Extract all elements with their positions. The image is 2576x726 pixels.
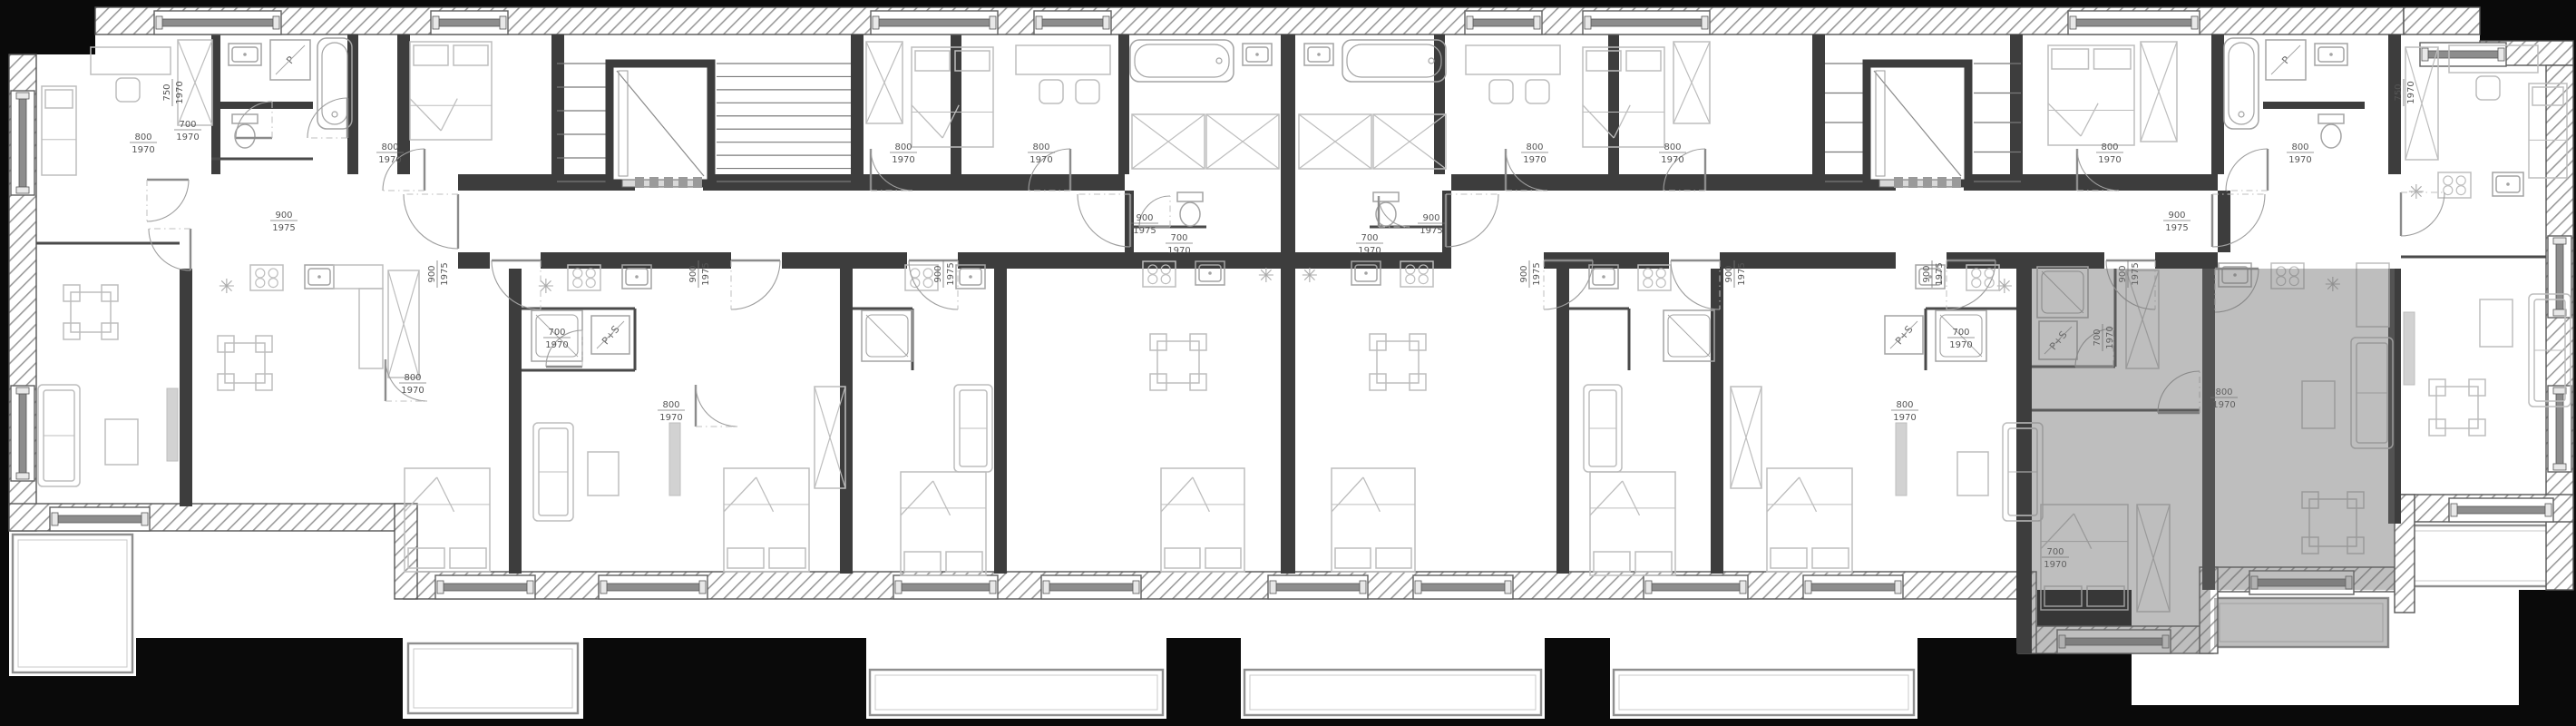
window-cap [156, 16, 162, 29]
dim-height: 1970 [2098, 155, 2121, 165]
dim-height: 1975 [440, 262, 450, 285]
dim-height: 1970 [1167, 246, 1190, 256]
wall [1812, 34, 1825, 174]
wall [2388, 34, 2401, 174]
building-slab [136, 531, 403, 638]
dim-width: 800 [404, 373, 421, 383]
dim-width: 800 [1664, 142, 1681, 152]
window-bar [19, 393, 26, 474]
fridge-symbol: ✳ [1258, 265, 1274, 288]
dim-width: 900 [1922, 265, 1932, 282]
window-bar [443, 584, 528, 591]
drain [243, 53, 247, 56]
wall [347, 34, 358, 174]
dim-width: 700 [1952, 328, 1969, 338]
window-cap [1895, 581, 1901, 594]
dim-height: 1970 [1893, 413, 1916, 423]
window-bar [57, 515, 142, 523]
window-cap [1036, 16, 1042, 29]
dim-width: 800 [2291, 142, 2308, 152]
window-cap [1270, 581, 1276, 594]
window-bar [161, 19, 274, 26]
window-cap [16, 93, 29, 99]
terrace [1614, 670, 1914, 715]
window-cap [141, 513, 148, 525]
window-cap [1043, 581, 1049, 594]
window-bar [1049, 584, 1134, 591]
window [1268, 575, 1368, 599]
wall [2211, 34, 2224, 174]
wall [180, 269, 192, 506]
window [50, 507, 150, 531]
window-cap [1415, 581, 1421, 594]
window-bar [1420, 584, 1506, 591]
wall [951, 34, 961, 174]
window-bar [2556, 243, 2563, 310]
dim-height: 1975 [272, 223, 295, 233]
dim-height: 1975 [1935, 262, 1945, 285]
drain [635, 275, 639, 279]
window-cap [1740, 581, 1746, 594]
terrace [870, 670, 1163, 715]
window [11, 386, 34, 481]
tv-bench [2404, 312, 2415, 385]
window-cap [1645, 581, 1652, 594]
dim-height: 1970 [545, 340, 568, 350]
window-cap [2553, 464, 2566, 470]
window-cap [1133, 581, 1139, 594]
window-cap [895, 581, 902, 594]
dim-width: 900 [2168, 211, 2185, 221]
dim-height: 1970 [1029, 155, 1052, 165]
exterior-wall [2404, 7, 2480, 34]
wall [458, 174, 551, 191]
wall [551, 34, 564, 174]
window-bar [19, 98, 26, 188]
terrace [2403, 525, 2568, 586]
dim-width: 700 [548, 328, 565, 338]
window [599, 575, 707, 599]
window-cap [699, 581, 706, 594]
window [1803, 575, 1903, 599]
wall [2016, 269, 2032, 653]
dim-height: 1975 [1133, 226, 1156, 236]
wall [2263, 102, 2365, 109]
window [2068, 11, 2200, 34]
window-cap [990, 581, 996, 594]
wall [958, 252, 1125, 269]
dim-width: 700 [179, 120, 196, 130]
wall [397, 34, 410, 174]
tv-bench [167, 388, 178, 461]
window-cap [1702, 16, 1708, 29]
dim-height: 1970 [892, 155, 914, 165]
window [2420, 43, 2506, 66]
fridge-icon: ✳ [1258, 265, 1274, 288]
terrace [1244, 670, 1541, 715]
dim-width: 800 [1896, 400, 1913, 410]
window-bar [2456, 506, 2546, 514]
dim-width: 900 [933, 265, 943, 282]
drain [1317, 53, 1321, 56]
window [154, 11, 281, 34]
dim-height: 1970 [2288, 155, 2311, 165]
window-cap [2451, 504, 2457, 516]
dim-width: 750 [162, 83, 172, 101]
fridge-symbol: ✳ [219, 276, 235, 299]
drain [1255, 53, 1259, 56]
window-bar [1590, 19, 1703, 26]
dim-height: 1975 [2165, 223, 2188, 233]
drain [2329, 53, 2333, 56]
tv-bench [669, 423, 680, 495]
window-cap [873, 16, 879, 29]
fridge-icon: ✳ [1302, 265, 1318, 288]
wall [840, 269, 853, 574]
exterior-wall [395, 504, 417, 599]
wall [703, 174, 864, 191]
dim-width: 900 [688, 265, 698, 282]
dim-height: 1970 [1949, 340, 1972, 350]
wall [1281, 269, 1295, 574]
dim-width: 800 [134, 132, 151, 142]
dim-width: 900 [427, 265, 437, 282]
window [2548, 386, 2571, 472]
window [893, 575, 998, 599]
terrace [408, 643, 578, 713]
wall [458, 252, 490, 269]
window [431, 11, 508, 34]
highlighted-balcony [2214, 598, 2388, 647]
window [871, 11, 998, 34]
drain [1364, 271, 1368, 275]
wall [994, 269, 1007, 574]
window [1413, 575, 1513, 599]
window-cap [2070, 16, 2076, 29]
tv-bench [669, 423, 680, 495]
window-cap [500, 16, 506, 29]
window-cap [16, 388, 29, 394]
window-cap [2191, 16, 2198, 29]
wall [1964, 174, 2023, 191]
window-bar [2556, 393, 2563, 465]
dim-width: 800 [1526, 142, 1543, 152]
dim-height: 1970 [1358, 246, 1381, 256]
dim-height: 1975 [1420, 226, 1442, 236]
dim-height: 1970 [401, 386, 424, 396]
tv-bench [167, 388, 178, 461]
dim-height: 1970 [1523, 155, 1546, 165]
dim-width: 900 [1724, 265, 1734, 282]
dim-width: 800 [381, 142, 398, 152]
window [1583, 11, 1710, 34]
window-cap [1103, 16, 1109, 29]
window-bar [1472, 19, 1535, 26]
drain [1602, 275, 1605, 279]
dim-width: 800 [662, 400, 679, 410]
dim-width: 900 [1422, 213, 1439, 223]
fridge-symbol: ✳ [1302, 265, 1318, 288]
window-cap [990, 16, 996, 29]
window-cap [16, 473, 29, 479]
terrace [13, 535, 132, 672]
window-cap [1585, 16, 1591, 29]
drain [1208, 271, 1212, 275]
window-cap [2553, 388, 2566, 394]
tv-bench [2404, 312, 2415, 385]
drain [317, 275, 321, 279]
dim-height: 1970 [176, 132, 199, 142]
window [1034, 11, 1111, 34]
dim-height: 1975 [1532, 262, 1542, 285]
floor-plan-stage: P✳✳P✳✳✳P+S✳P+SP+S✳9001975900197590019759… [0, 0, 2576, 726]
window-bar [901, 584, 990, 591]
window-cap [1360, 581, 1366, 594]
dim-height: 1975 [946, 262, 956, 285]
dim-width: 800 [1032, 142, 1049, 152]
window-cap [2498, 48, 2504, 61]
window-cap [16, 187, 29, 193]
tv-bench [1896, 423, 1907, 495]
window-bar [1041, 19, 1104, 26]
wall [1434, 34, 1445, 174]
wall [1556, 269, 1569, 574]
window [1465, 11, 1542, 34]
wall [782, 252, 907, 269]
wall [1281, 34, 1295, 269]
window-bar [878, 19, 990, 26]
window [2548, 236, 2571, 318]
window-bar [2075, 19, 2192, 26]
wall [2023, 174, 2218, 191]
wall [1118, 34, 1129, 174]
window-cap [2545, 504, 2552, 516]
wall [864, 174, 1125, 191]
drain [2506, 182, 2510, 186]
dim-width: 800 [894, 142, 912, 152]
window-bar [1275, 584, 1361, 591]
dim-height: 1970 [175, 81, 185, 103]
wall [1608, 34, 1619, 174]
window-bar [1810, 584, 1896, 591]
window [1041, 575, 1141, 599]
dim-height: 1970 [1661, 155, 1683, 165]
window [11, 91, 34, 195]
window [2449, 498, 2553, 522]
dim-height: 1975 [701, 262, 711, 285]
wall [851, 34, 864, 174]
wall [509, 269, 522, 574]
window-cap [2553, 238, 2566, 244]
dim-width: 900 [1136, 213, 1153, 223]
window-cap [527, 581, 533, 594]
dim-height: 1970 [132, 145, 154, 155]
window-cap [273, 16, 279, 29]
window-cap [600, 581, 607, 594]
dim-width: 700 [1361, 233, 1378, 243]
window-cap [2422, 48, 2428, 61]
window [435, 575, 535, 599]
window-cap [1805, 581, 1811, 594]
window-cap [437, 581, 444, 594]
dim-height: 1970 [2406, 81, 2416, 103]
dim-width: 900 [275, 211, 292, 221]
dim-height: 1970 [659, 413, 682, 423]
window-bar [1651, 584, 1741, 591]
tv-bench [1896, 423, 1907, 495]
window-cap [52, 513, 58, 525]
wall [2218, 191, 2230, 252]
wall [1711, 269, 1723, 574]
wall [2010, 34, 2023, 174]
dim-width: 700 [1170, 233, 1187, 243]
window-cap [433, 16, 439, 29]
window-cap [1467, 16, 1473, 29]
window-cap [1505, 581, 1511, 594]
dim-width: 800 [2101, 142, 2118, 152]
window-cap [2553, 309, 2566, 316]
dim-height: 1975 [1737, 262, 1747, 285]
window-bar [438, 19, 501, 26]
floor-plan-drawing: P✳✳P✳✳✳P+S✳P+SP+S✳9001975900197590019759… [0, 0, 2576, 726]
dim-width: 900 [1519, 265, 1529, 282]
window [1644, 575, 1748, 599]
dim-width: 750 [2394, 83, 2404, 101]
drain [969, 275, 972, 279]
fridge-icon: ✳ [219, 276, 235, 299]
dim-height: 1970 [378, 155, 401, 165]
window-bar [606, 584, 700, 591]
window-cap [1534, 16, 1540, 29]
